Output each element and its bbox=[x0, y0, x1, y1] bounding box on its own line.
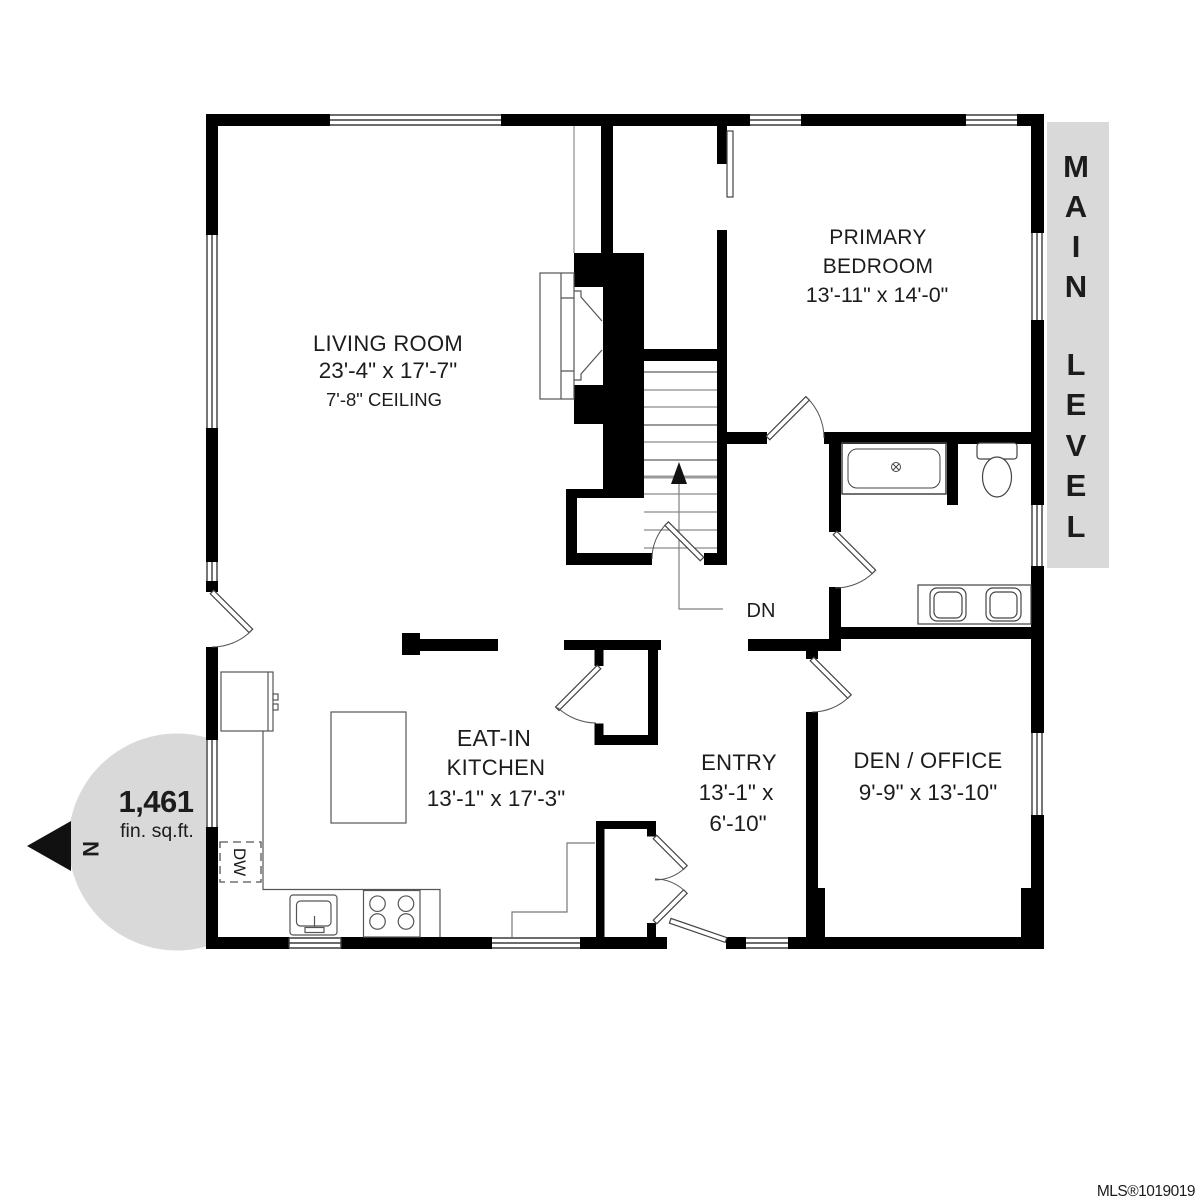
svg-text:I: I bbox=[1072, 229, 1081, 264]
svg-text:DN: DN bbox=[747, 600, 776, 622]
svg-text:A: A bbox=[1065, 189, 1087, 224]
svg-text:L: L bbox=[1067, 347, 1086, 382]
svg-text:BEDROOM: BEDROOM bbox=[823, 255, 934, 278]
svg-text:13'-1" x 17'-3": 13'-1" x 17'-3" bbox=[427, 786, 565, 811]
svg-text:13'-1" x: 13'-1" x bbox=[699, 780, 775, 805]
svg-text:EAT-IN: EAT-IN bbox=[457, 725, 531, 751]
svg-text:LIVING ROOM: LIVING ROOM bbox=[313, 331, 463, 356]
svg-text:ENTRY: ENTRY bbox=[701, 750, 777, 775]
svg-text:V: V bbox=[1066, 428, 1087, 463]
svg-text:M: M bbox=[1063, 149, 1089, 184]
svg-text:1,461: 1,461 bbox=[118, 784, 193, 819]
svg-text:13'-11" x 14'-0": 13'-11" x 14'-0" bbox=[806, 283, 949, 307]
svg-text:6'-10": 6'-10" bbox=[709, 811, 766, 836]
svg-text:PRIMARY: PRIMARY bbox=[829, 226, 926, 249]
svg-text:KITCHEN: KITCHEN bbox=[447, 755, 546, 780]
svg-text:N: N bbox=[1065, 269, 1087, 304]
svg-text:DEN / OFFICE: DEN / OFFICE bbox=[853, 748, 1002, 773]
svg-text:9'-9" x 13'-10": 9'-9" x 13'-10" bbox=[859, 780, 997, 805]
svg-text:23'-4" x 17'-7": 23'-4" x 17'-7" bbox=[319, 358, 457, 383]
svg-text:E: E bbox=[1066, 468, 1087, 503]
svg-text:fin. sq.ft.: fin. sq.ft. bbox=[120, 820, 194, 842]
svg-text:L: L bbox=[1067, 509, 1086, 544]
svg-text:N: N bbox=[78, 841, 103, 857]
svg-text:7'-8" CEILING: 7'-8" CEILING bbox=[326, 389, 442, 410]
svg-text:DW: DW bbox=[230, 848, 249, 876]
svg-text:MLS®1019019: MLS®1019019 bbox=[1097, 1183, 1195, 1200]
svg-text:E: E bbox=[1066, 387, 1087, 422]
